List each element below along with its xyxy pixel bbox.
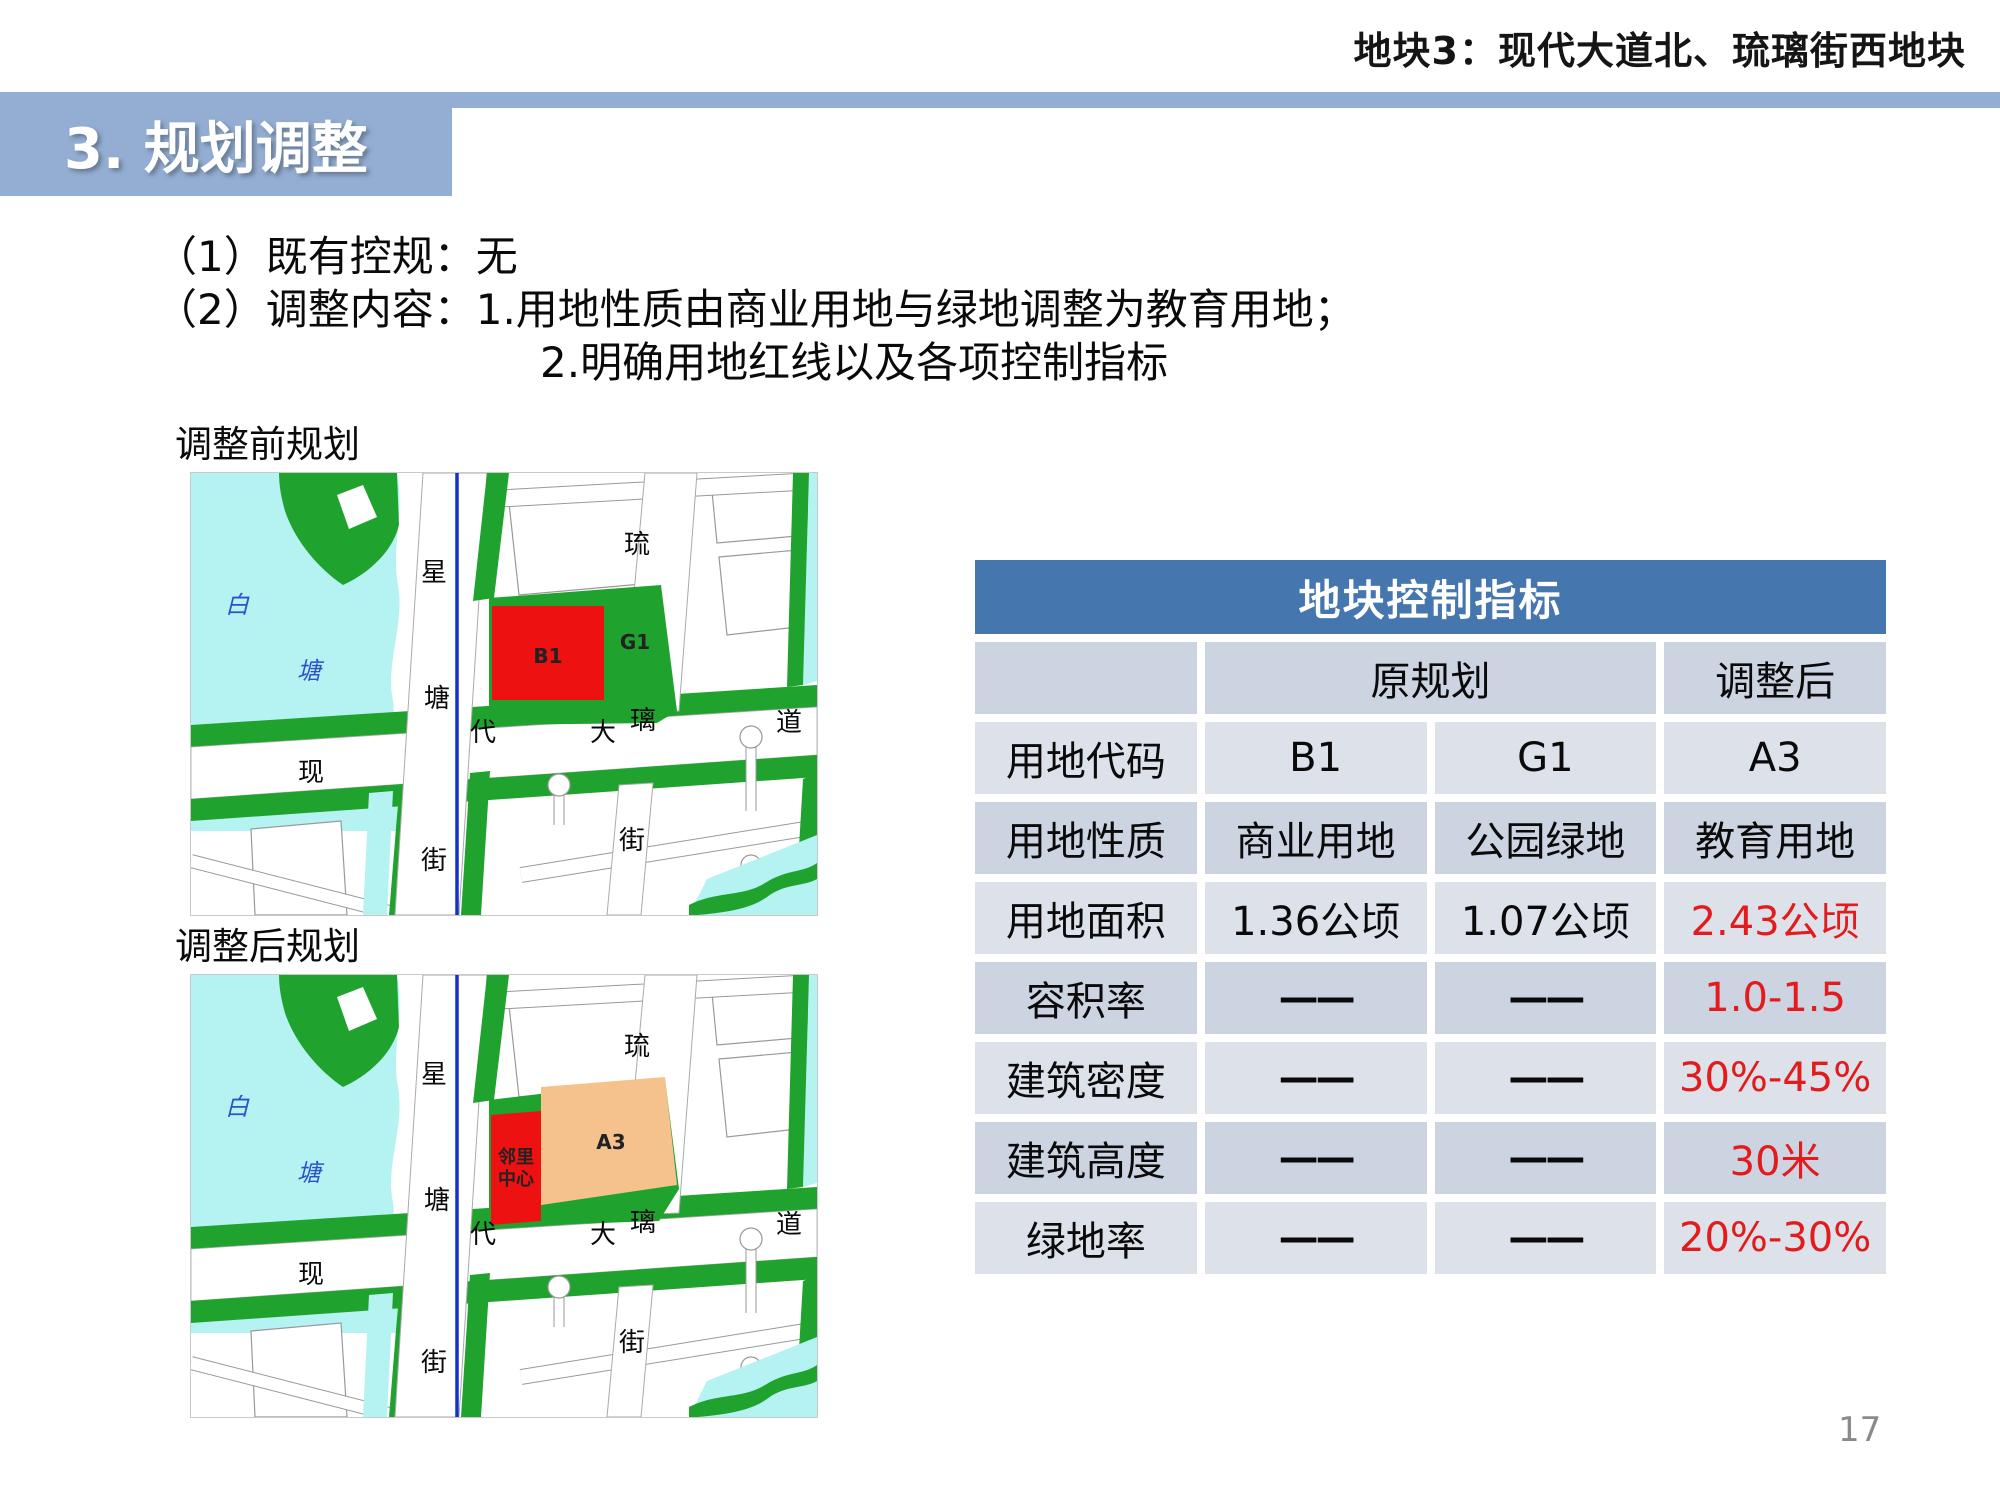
section-title-block: 3. 规划调整 bbox=[0, 92, 452, 196]
table-cell-adjusted: 30米 bbox=[1664, 1122, 1886, 1194]
after-map-svg: 邻里中心A3 白 塘 星 塘 街 琉 璃 街 现 代 大 道 bbox=[191, 975, 817, 1417]
before-map-svg: B1G1 白 塘 星 塘 街 琉 璃 街 现 代 大 道 bbox=[191, 473, 817, 915]
table-grid: 原规划 调整后 用地代码 B1 G1 A3 用地性质 商业用地 公园绿地 教育用… bbox=[975, 642, 1886, 1274]
control-indicator-table: 地块控制指标 原规划 调整后 用地代码 B1 G1 A3 用地性质 商业用地 公… bbox=[975, 560, 1886, 1274]
road-label: 塘 bbox=[424, 684, 450, 714]
road-label: 街 bbox=[421, 846, 447, 876]
row-label: 建筑密度 bbox=[975, 1042, 1197, 1114]
body-line-3: 2.明确用地红线以及各项控制指标 bbox=[155, 336, 1356, 389]
table-cell-adjusted: 2.43公顷 bbox=[1664, 882, 1886, 954]
body-line-2: （2）调整内容：1.用地性质由商业用地与绿地调整为教育用地； bbox=[155, 283, 1356, 336]
table-cell: 1.36公顷 bbox=[1205, 882, 1427, 954]
g1-label: G1 bbox=[620, 630, 650, 654]
after-map: 邻里中心A3 白 塘 星 塘 街 琉 璃 街 现 代 大 道 bbox=[190, 974, 818, 1418]
col-header-original: 原规划 bbox=[1205, 642, 1657, 714]
road-label: 塘 bbox=[424, 1186, 450, 1216]
table-title-bar: 地块控制指标 bbox=[975, 560, 1886, 634]
body-text: （1）既有控规：无 （2）调整内容：1.用地性质由商业用地与绿地调整为教育用地；… bbox=[155, 230, 1356, 389]
road-label: 街 bbox=[421, 1348, 447, 1378]
row-label: 容积率 bbox=[975, 962, 1197, 1034]
table-cell-adjusted: 20%-30% bbox=[1664, 1202, 1886, 1274]
table-cell: 商业用地 bbox=[1205, 802, 1427, 874]
water-label: 塘 bbox=[297, 657, 325, 685]
row-label: 建筑高度 bbox=[975, 1122, 1197, 1194]
table-cell: 公园绿地 bbox=[1435, 802, 1657, 874]
row-label: 用地性质 bbox=[975, 802, 1197, 874]
road-label: 现 bbox=[298, 758, 324, 788]
road-label: 现 bbox=[298, 1260, 324, 1290]
body-line-2-item: 1.用地性质由商业用地与绿地调整为教育用地； bbox=[476, 285, 1356, 334]
body-line-1: （1）既有控规：无 bbox=[155, 230, 1356, 283]
section-title: 3. 规划调整 bbox=[64, 104, 368, 185]
table-cell: 教育用地 bbox=[1664, 802, 1886, 874]
row-label: 用地代码 bbox=[975, 722, 1197, 794]
neighborhood-center-label: 中心 bbox=[498, 1168, 534, 1190]
neighborhood-center-label: 邻里 bbox=[498, 1146, 534, 1168]
after-map-label: 调整后规划 bbox=[175, 916, 360, 970]
neighborhood-center-block bbox=[491, 1111, 541, 1225]
water-label: 塘 bbox=[297, 1159, 325, 1187]
road-label: 琉 bbox=[624, 530, 650, 560]
road-label: 代 bbox=[470, 718, 496, 748]
body-line-2-prefix: （2）调整内容： bbox=[155, 285, 476, 334]
before-map-label: 调整前规划 bbox=[175, 414, 360, 468]
table-cell: B1 bbox=[1205, 722, 1427, 794]
road-label: 大 bbox=[590, 1220, 616, 1250]
water-label: 白 bbox=[225, 591, 250, 619]
table-cell: 1.07公顷 bbox=[1435, 882, 1657, 954]
road-label: 琉 bbox=[624, 1032, 650, 1062]
road-label: 街 bbox=[619, 1328, 645, 1358]
table-cell: G1 bbox=[1435, 722, 1657, 794]
road-label: 街 bbox=[619, 826, 645, 856]
slide-header: 地块3：现代大道北、琉璃街西地块 bbox=[1354, 20, 1966, 75]
table-cell-adjusted: 1.0-1.5 bbox=[1664, 962, 1886, 1034]
page-number: 17 bbox=[1838, 1410, 1881, 1450]
table-cell: —— bbox=[1205, 1042, 1427, 1114]
table-cell: —— bbox=[1435, 962, 1657, 1034]
table-corner-cell bbox=[975, 642, 1197, 714]
road-label: 大 bbox=[590, 718, 616, 748]
table-cell-adjusted: 30%-45% bbox=[1664, 1042, 1886, 1114]
road-label: 璃 bbox=[630, 1208, 656, 1238]
road-label: 代 bbox=[470, 1220, 496, 1250]
road-label: 道 bbox=[776, 1210, 802, 1240]
before-map: B1G1 白 塘 星 塘 街 琉 璃 街 现 代 大 道 bbox=[190, 472, 818, 916]
table-cell: —— bbox=[1205, 1202, 1427, 1274]
table-cell: —— bbox=[1435, 1042, 1657, 1114]
table-cell: —— bbox=[1205, 962, 1427, 1034]
row-label: 用地面积 bbox=[975, 882, 1197, 954]
table-cell: —— bbox=[1435, 1202, 1657, 1274]
b1-label: B1 bbox=[533, 644, 562, 668]
road-label: 星 bbox=[421, 558, 447, 588]
road-label: 道 bbox=[776, 708, 802, 738]
water-label: 白 bbox=[225, 1093, 250, 1121]
road-label: 璃 bbox=[630, 706, 656, 736]
col-header-adjusted: 调整后 bbox=[1664, 642, 1886, 714]
table-cell: —— bbox=[1435, 1122, 1657, 1194]
row-label: 绿地率 bbox=[975, 1202, 1197, 1274]
a3-label: A3 bbox=[596, 1130, 625, 1154]
table-cell: —— bbox=[1205, 1122, 1427, 1194]
road-label: 星 bbox=[421, 1060, 447, 1090]
table-cell: A3 bbox=[1664, 722, 1886, 794]
